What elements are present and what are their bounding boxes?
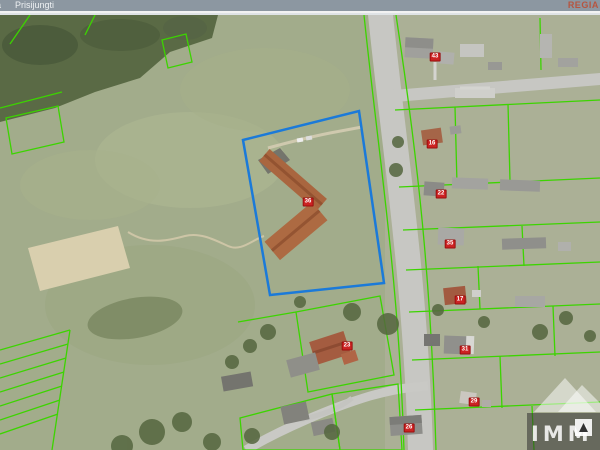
brand-logo-text[interactable]: REGIA V bbox=[568, 0, 600, 12]
map-canvas[interactable]: IMM 43162236351723312926 bbox=[0, 15, 600, 450]
top-menu: a Prisijungti bbox=[0, 0, 54, 12]
aerial-map-image: IMM bbox=[0, 15, 600, 450]
menu-item-login[interactable]: Prisijungti bbox=[15, 0, 54, 12]
top-menu-bar: a Prisijungti REGIA V bbox=[0, 0, 600, 13]
regia-map-window: a Prisijungti REGIA V bbox=[0, 0, 600, 450]
menu-item-truncated[interactable]: a bbox=[0, 0, 1, 12]
